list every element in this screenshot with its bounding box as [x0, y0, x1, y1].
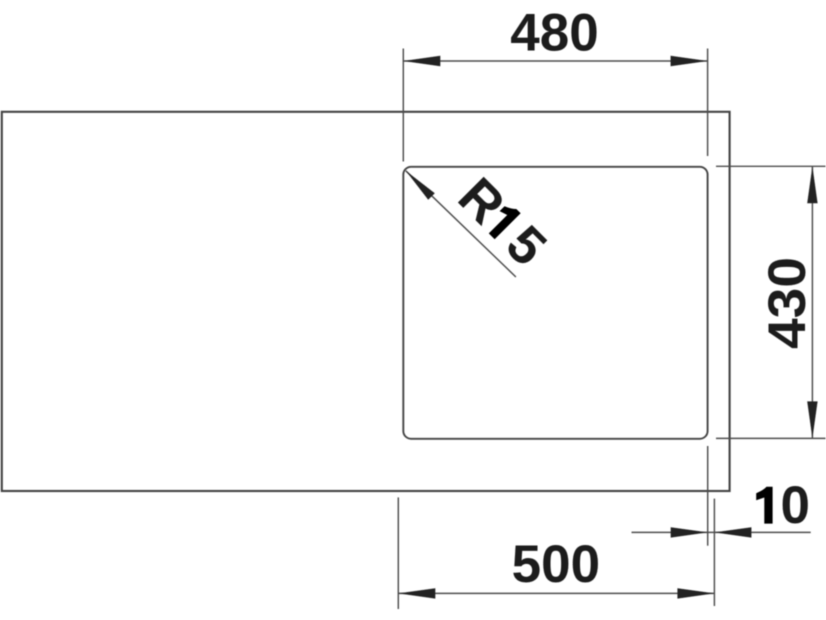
- svg-text:430: 430: [758, 257, 817, 349]
- svg-text:0: 0: [781, 476, 810, 535]
- svg-text:500: 500: [512, 535, 600, 594]
- svg-text:480: 480: [510, 4, 598, 63]
